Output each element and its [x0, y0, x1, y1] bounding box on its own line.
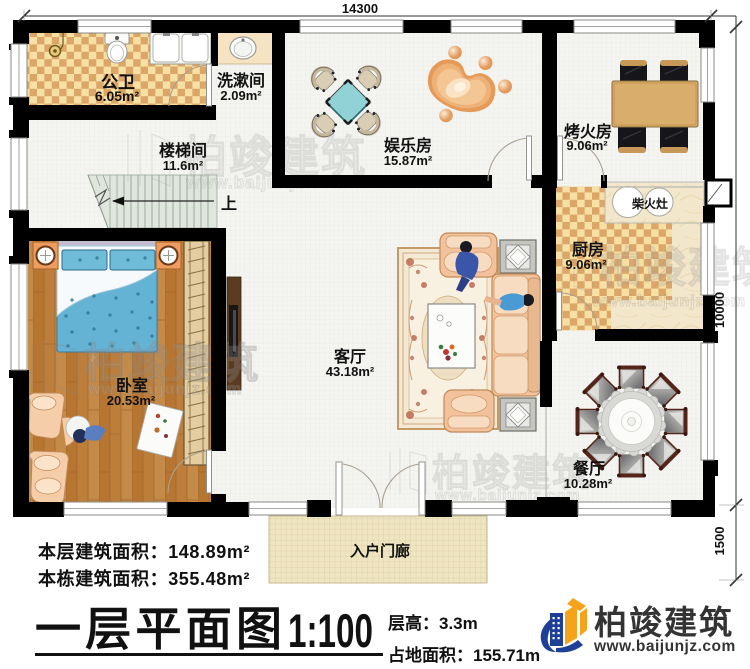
- svg-text:14300: 14300: [342, 1, 378, 16]
- svg-text:占地面积：155.71m: 占地面积：155.71m: [388, 645, 540, 665]
- svg-text:6.05m²: 6.05m²: [95, 88, 140, 104]
- svg-text:15.87m²: 15.87m²: [384, 153, 433, 168]
- svg-text:9.06m²: 9.06m²: [565, 257, 607, 272]
- svg-text:10.28m²: 10.28m²: [564, 476, 613, 491]
- svg-text:2.09m²: 2.09m²: [220, 88, 262, 103]
- svg-text:1:100: 1:100: [288, 604, 373, 657]
- svg-text:43.18m²: 43.18m²: [326, 364, 375, 379]
- svg-text:本层建筑面积：148.89m²: 本层建筑面积：148.89m²: [38, 541, 250, 562]
- svg-text:一层平面图: 一层平面图: [35, 603, 282, 655]
- svg-text:20.53m²: 20.53m²: [107, 393, 156, 408]
- svg-text:9.06m²: 9.06m²: [566, 138, 608, 153]
- svg-text:10000: 10000: [712, 292, 727, 328]
- svg-text:11.6m²: 11.6m²: [163, 158, 204, 173]
- svg-text:柏竣建筑: 柏竣建筑: [600, 244, 750, 291]
- svg-text:本栋建筑面积：355.48m²: 本栋建筑面积：355.48m²: [38, 568, 250, 589]
- svg-text:入户门廊: 入户门廊: [350, 542, 410, 560]
- svg-text:层高：3.3m: 层高：3.3m: [388, 613, 478, 633]
- svg-text:上: 上: [221, 195, 237, 213]
- svg-text:柏竣建筑: 柏竣建筑: [594, 604, 734, 641]
- svg-text:www.baijunjz.com: www.baijunjz.com: [593, 638, 736, 655]
- svg-text:1500: 1500: [712, 527, 727, 556]
- svg-text:柏竣建筑: 柏竣建筑: [84, 340, 260, 387]
- svg-text:柴火灶: 柴火灶: [631, 196, 668, 211]
